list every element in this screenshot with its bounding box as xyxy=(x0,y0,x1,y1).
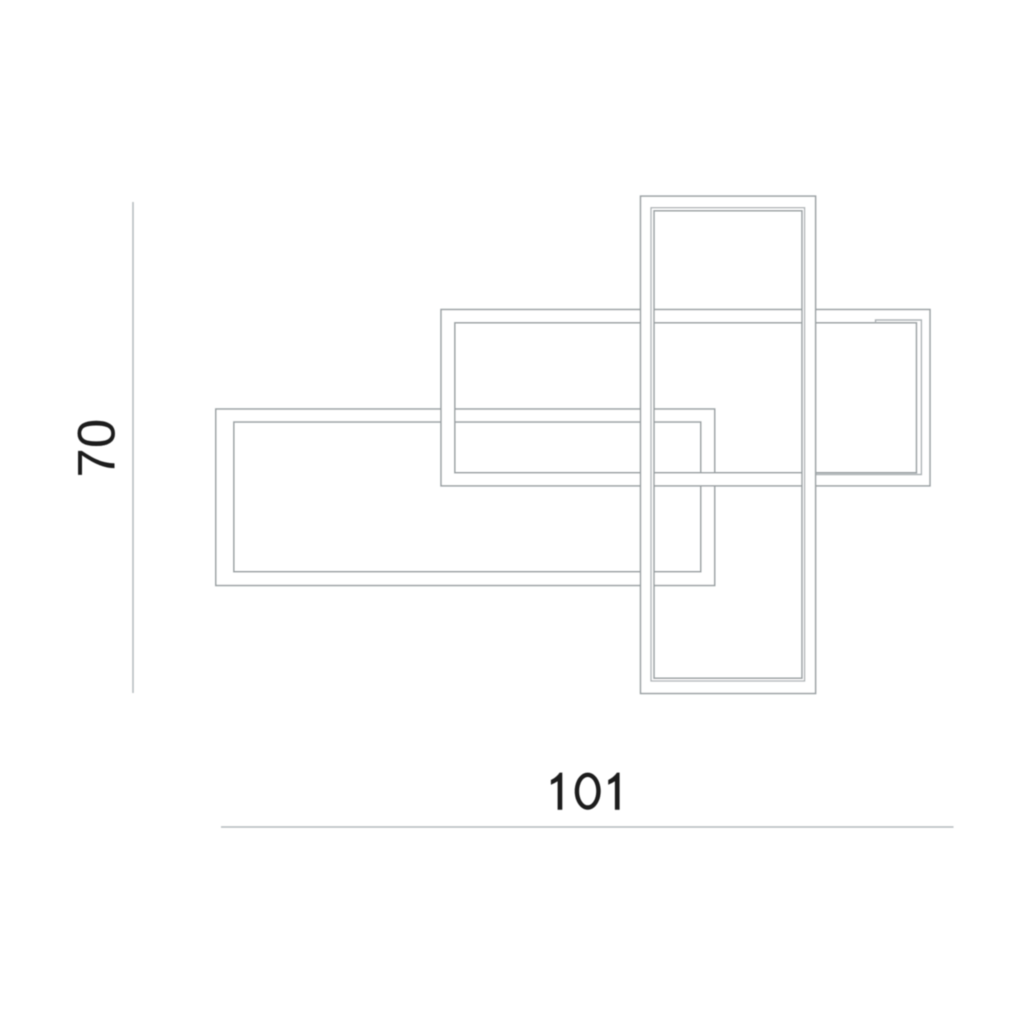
svg-text:70: 70 xyxy=(68,419,127,478)
